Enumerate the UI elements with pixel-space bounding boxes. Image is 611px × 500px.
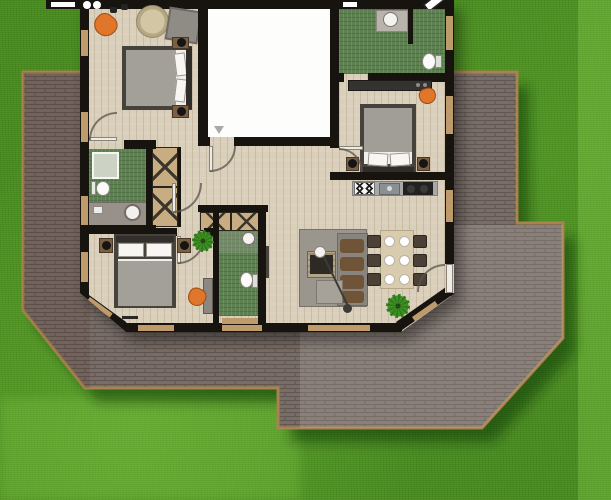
bathroom-l-wall-right bbox=[146, 143, 152, 233]
window-left-2 bbox=[81, 112, 88, 142]
bed-tl-blanket bbox=[126, 50, 178, 106]
house-floor bbox=[80, 0, 454, 332]
vanity-l-soap bbox=[93, 206, 103, 214]
dining-chair-3 bbox=[367, 273, 381, 286]
shower-l bbox=[92, 152, 119, 179]
toilet-tr-tank bbox=[435, 55, 442, 68]
terrace-dark-left-strip bbox=[23, 72, 90, 388]
bed-r-blanket bbox=[364, 108, 412, 152]
kitchen-wall-north bbox=[330, 172, 445, 180]
plate-3 bbox=[384, 274, 395, 285]
lamp-tl-1 bbox=[177, 38, 186, 47]
bed-r-pillow-2 bbox=[390, 152, 411, 166]
bed-tl-headboard bbox=[186, 47, 192, 109]
wall-lamp-1 bbox=[83, 1, 91, 9]
bed-bl-bench bbox=[122, 316, 138, 319]
corner-chair-orange bbox=[90, 9, 122, 41]
plate-4 bbox=[399, 236, 410, 247]
lamp-tl-2 bbox=[177, 107, 186, 116]
bathroom-l-door-arc bbox=[89, 112, 117, 140]
ottoman bbox=[316, 280, 343, 304]
white-room-wall-bottom bbox=[234, 137, 330, 146]
bathroom-c-wall-right bbox=[258, 211, 266, 324]
terrace-door-leaf bbox=[446, 264, 453, 293]
window-right-1 bbox=[446, 16, 453, 50]
kitchen-faucet bbox=[387, 186, 392, 191]
bed-r-pillow-1 bbox=[368, 152, 389, 166]
dresser-knob-1 bbox=[416, 83, 420, 87]
window-bottom-3 bbox=[308, 325, 370, 331]
shower-tr-head bbox=[383, 12, 398, 27]
window-left-4 bbox=[81, 252, 88, 282]
white-room-wall-bottom-stub bbox=[198, 137, 210, 146]
terrace-door-arc bbox=[417, 264, 445, 292]
bed-bl-blanket bbox=[118, 259, 172, 306]
dining-chair-2 bbox=[367, 254, 381, 267]
dining-chair-5 bbox=[413, 254, 427, 267]
bathroom-tr-wall-bottom-1 bbox=[330, 73, 344, 82]
toilet-c-tank bbox=[252, 274, 258, 288]
bed-bl-pillow-1 bbox=[118, 243, 144, 257]
sofa-cushion-2 bbox=[340, 257, 364, 271]
wall-top bbox=[80, 0, 454, 9]
window-top-2 bbox=[342, 1, 358, 8]
bathroom-c-window bbox=[222, 318, 258, 324]
window-right-2 bbox=[446, 96, 453, 134]
wardrobe-v-cell-1 bbox=[152, 147, 178, 187]
floor-lamp-shade bbox=[314, 246, 326, 258]
bed-bl-pillow-2 bbox=[146, 243, 172, 257]
toilet-l-bowl bbox=[96, 181, 110, 196]
shower-c-head bbox=[242, 232, 255, 245]
plant-bl bbox=[192, 230, 214, 252]
wall-speaker-2 bbox=[121, 4, 128, 10]
window-top-left bbox=[50, 1, 76, 8]
lamp-bl-1 bbox=[102, 241, 111, 250]
bathroom-l-wall-bottom bbox=[80, 225, 156, 234]
window-right-3 bbox=[446, 190, 453, 222]
window-left-3 bbox=[81, 196, 88, 228]
plate-6 bbox=[399, 274, 410, 285]
toilet-tr-bowl bbox=[422, 53, 436, 70]
vanity-l-sink bbox=[124, 204, 141, 221]
wall-a bbox=[198, 0, 208, 146]
chair-right-orange bbox=[417, 86, 438, 106]
lamp-bl-2 bbox=[180, 241, 189, 250]
dining-chair-4 bbox=[413, 235, 427, 248]
bathroom-tr-partition bbox=[408, 9, 413, 44]
window-bottom-1 bbox=[138, 325, 174, 331]
dining-chair-1 bbox=[367, 235, 381, 248]
plate-1 bbox=[384, 236, 395, 247]
plate-5 bbox=[399, 255, 410, 266]
plate-2 bbox=[384, 255, 395, 266]
dresser-knob-2 bbox=[423, 83, 427, 87]
sofa-cushion-1 bbox=[340, 239, 364, 253]
bed-bl-headboard bbox=[116, 236, 174, 242]
round-rug bbox=[136, 5, 169, 38]
window-bottom-2 bbox=[222, 325, 262, 331]
cooktop-burner-1 bbox=[407, 185, 415, 193]
stove-four-burner bbox=[354, 182, 375, 195]
window-left-1 bbox=[81, 30, 88, 56]
wall-lamp-2 bbox=[93, 1, 101, 9]
white-room bbox=[208, 9, 330, 137]
white-room-door-arc bbox=[210, 146, 236, 172]
plant-living bbox=[386, 294, 410, 318]
bathroom-c-door-leaf bbox=[266, 246, 269, 278]
lamp-r-2 bbox=[419, 159, 428, 168]
cooktop-burner-2 bbox=[420, 185, 428, 193]
floor-plan-scene bbox=[0, 0, 611, 500]
wall-speaker-1 bbox=[110, 7, 117, 13]
floor-lamp-base bbox=[343, 304, 352, 313]
sofa-cushion-3 bbox=[340, 275, 364, 289]
